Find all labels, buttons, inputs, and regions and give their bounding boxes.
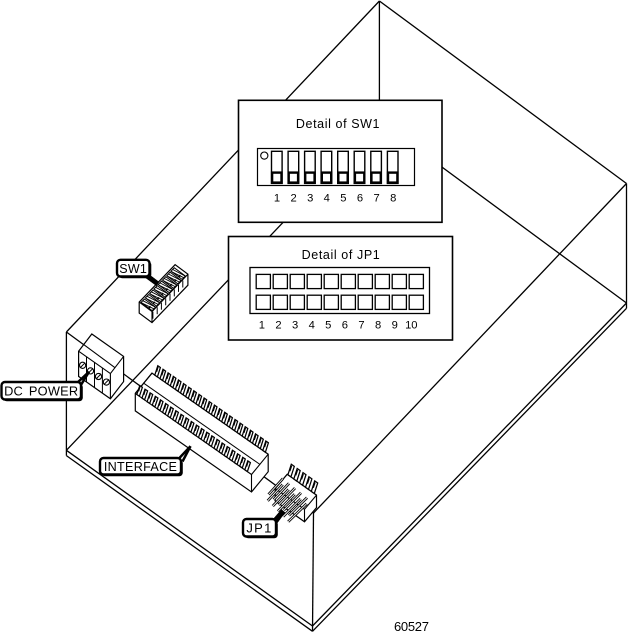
svg-text:2: 2 [275, 320, 281, 332]
svg-text:8: 8 [375, 320, 381, 332]
svg-text:1: 1 [259, 320, 265, 332]
svg-text:3: 3 [292, 320, 298, 332]
svg-text:5: 5 [325, 320, 331, 332]
svg-text:9: 9 [392, 320, 398, 332]
svg-text:60527: 60527 [394, 619, 429, 634]
svg-text:DC POWER: DC POWER [4, 383, 78, 398]
svg-text:10: 10 [405, 320, 417, 332]
svg-text:2: 2 [290, 193, 296, 205]
svg-text:5: 5 [340, 193, 346, 205]
svg-text:6: 6 [357, 193, 363, 205]
svg-text:4: 4 [324, 193, 330, 205]
svg-text:Detail of JP1: Detail of JP1 [302, 248, 381, 262]
svg-text:8: 8 [390, 193, 396, 205]
svg-text:4: 4 [309, 320, 315, 332]
svg-text:1: 1 [274, 193, 280, 205]
svg-text:7: 7 [373, 193, 379, 205]
svg-text:INTERFACE: INTERFACE [104, 460, 177, 474]
svg-text:3: 3 [307, 193, 313, 205]
svg-text:7: 7 [358, 320, 364, 332]
svg-text:JP1: JP1 [246, 520, 272, 535]
svg-text:6: 6 [342, 320, 348, 332]
svg-text:Detail of SW1: Detail of SW1 [296, 117, 380, 131]
svg-text:SW1: SW1 [119, 262, 147, 276]
